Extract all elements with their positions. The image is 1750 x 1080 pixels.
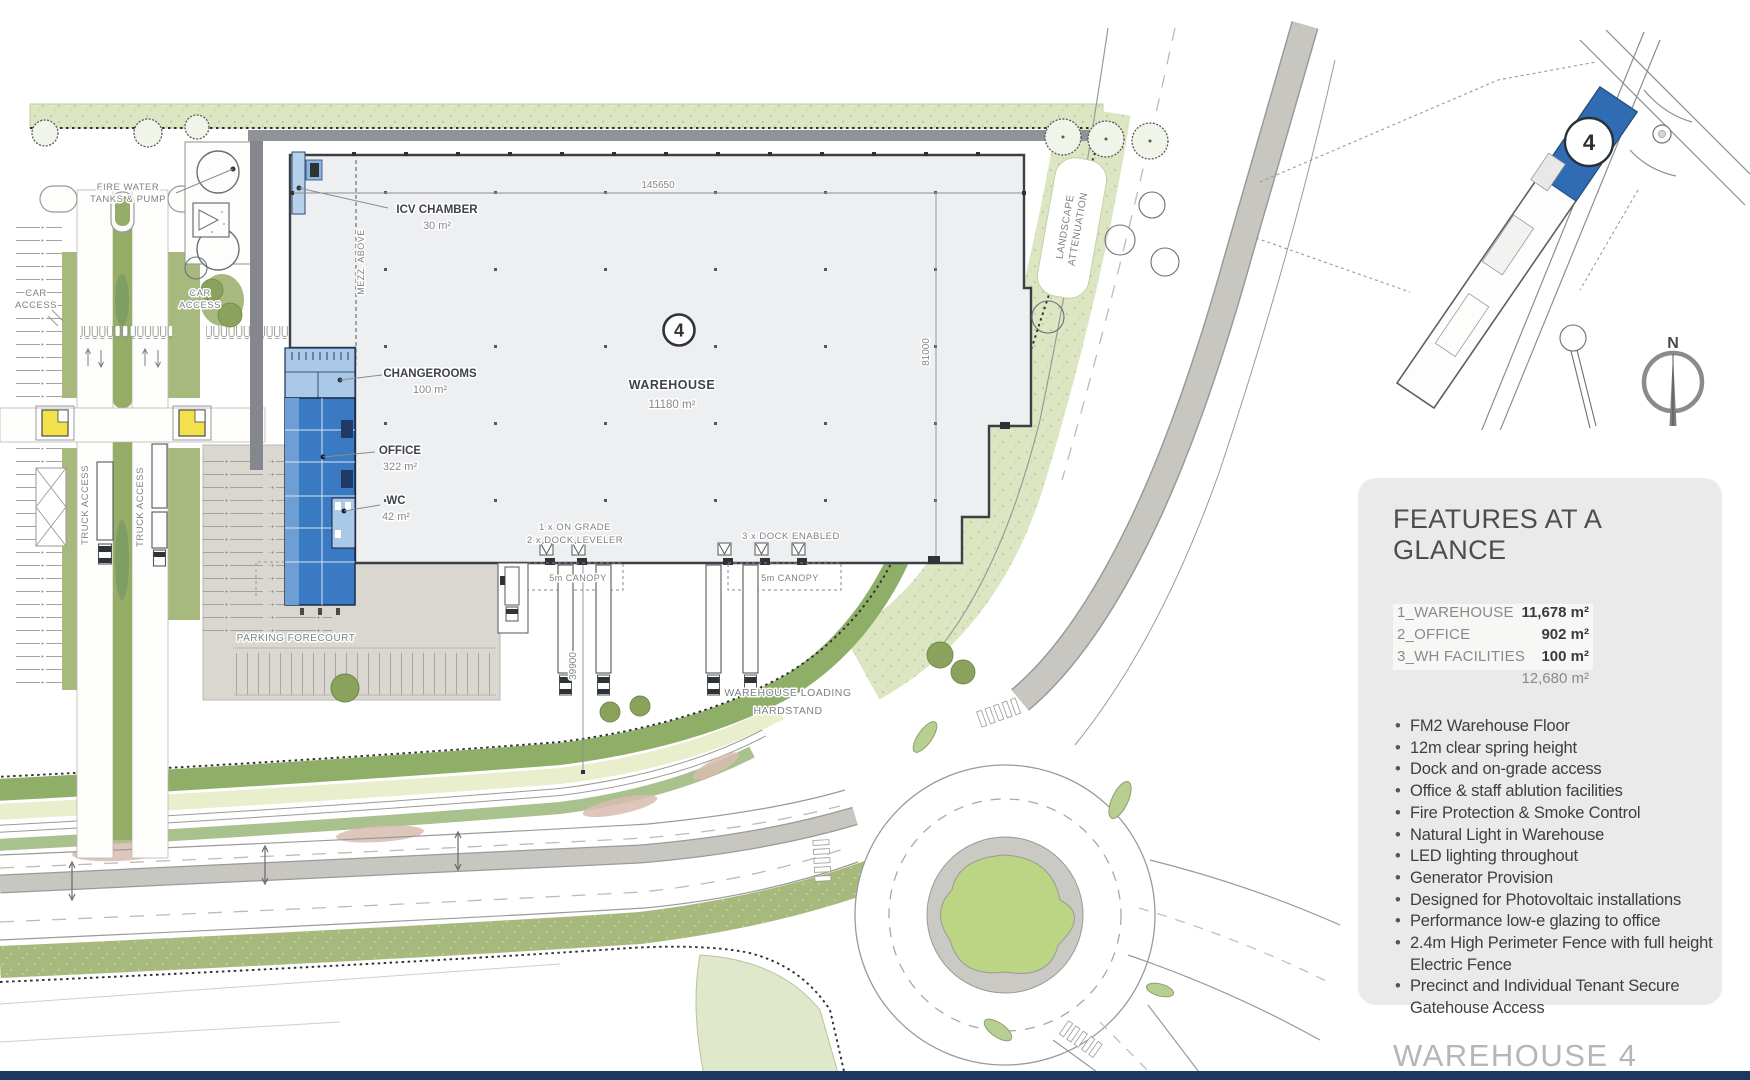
area-row-value: 100 m² bbox=[1541, 648, 1589, 665]
water-tank bbox=[197, 151, 239, 193]
area-schedule: 1_WAREHOUSE 11,678 m² 2_OFFICE 902 m² 3_… bbox=[1393, 604, 1593, 692]
features-panel: FEATURES AT A GLANCE 1_WAREHOUSE 11,678 … bbox=[1358, 478, 1722, 1005]
icv-chamber-label: ICV CHAMBER bbox=[396, 204, 478, 216]
feature-item: Natural Light in Warehouse bbox=[1393, 825, 1723, 847]
locator-culdesac bbox=[1560, 325, 1596, 428]
car-access-label: ACCESS bbox=[15, 300, 57, 311]
on-grade-bay bbox=[498, 563, 528, 633]
changerooms-label: CHANGEROOMS bbox=[383, 368, 477, 380]
compass-rose: N bbox=[1644, 335, 1702, 426]
canopy-label: 5m CANOPY bbox=[549, 573, 607, 583]
feature-item: 12m clear spring height bbox=[1393, 738, 1723, 760]
office-area: 322 m² bbox=[383, 461, 418, 473]
parking-forecourt-label: PARKING FORECOURT bbox=[237, 633, 356, 644]
boundary-wall bbox=[250, 132, 263, 470]
canopy-label: 5m CANOPY bbox=[761, 573, 819, 583]
area-total-value: 12,680 m² bbox=[1521, 670, 1589, 687]
car-access-label: ACCESS bbox=[179, 300, 221, 311]
roundabout bbox=[813, 698, 1340, 1080]
feature-item: Generator Provision bbox=[1393, 868, 1723, 890]
docks-left-label: 1 x ON GRADE bbox=[539, 522, 611, 533]
warehouse-area: 11180 m² bbox=[649, 399, 696, 411]
changerooms-area: 100 m² bbox=[413, 384, 448, 396]
feature-item: Dock and on-grade access bbox=[1393, 759, 1723, 781]
feature-item: 2.4m High Perimeter Fence with full heig… bbox=[1393, 933, 1723, 976]
feature-item: FM2 Warehouse Floor bbox=[1393, 716, 1723, 738]
page-title: WAREHOUSE 4 bbox=[1393, 1038, 1637, 1074]
dim-hardstand: 39900 bbox=[568, 652, 579, 680]
feature-item: Office & staff ablution facilities bbox=[1393, 781, 1723, 803]
truck-access-label: TRUCK ACCESS bbox=[135, 467, 146, 547]
brochure-page: 4 LANDSCAPE ATTENUATION FIRE WATER TANKS bbox=[0, 0, 1750, 1080]
feature-item: LED lighting throughout bbox=[1393, 846, 1723, 868]
gatehouse bbox=[173, 406, 211, 440]
mezz-above-label: MEZZ. ABOVE bbox=[356, 229, 366, 295]
fire-water-label: FIRE WATER bbox=[97, 182, 160, 193]
dim-top: 145650 bbox=[641, 180, 675, 191]
area-row-label: 3_WH FACILITIES bbox=[1397, 648, 1525, 665]
docks-left-label: 2 x DOCK LEVELER bbox=[527, 535, 623, 546]
wc-area: 42 m² bbox=[382, 511, 410, 523]
icv-chamber-area: 30 m² bbox=[423, 220, 451, 232]
car-access-label: CAR bbox=[189, 288, 211, 299]
area-row-label: 1_WAREHOUSE bbox=[1397, 604, 1514, 621]
truck bbox=[152, 444, 167, 566]
loading-hardstand-label: HARDSTAND bbox=[753, 705, 822, 717]
feature-item: Fire Protection & Smoke Control bbox=[1393, 803, 1723, 825]
locator-map: 4 N bbox=[1240, 30, 1750, 430]
fire-water-label: TANKS & PUMP bbox=[90, 194, 166, 205]
car-access-label: CAR bbox=[25, 288, 47, 299]
feature-item: Precinct and Individual Tenant Secure Ga… bbox=[1393, 976, 1723, 1019]
gatehouse bbox=[36, 406, 74, 440]
site-plan: 4 LANDSCAPE ATTENUATION FIRE WATER TANKS bbox=[0, 0, 1340, 1080]
office-label: OFFICE bbox=[379, 445, 421, 457]
footer-accent-bar bbox=[0, 1071, 1750, 1080]
area-total-row: 12,680 m² bbox=[1393, 670, 1593, 692]
area-row: 3_WH FACILITIES 100 m² bbox=[1393, 648, 1593, 670]
area-row: 2_OFFICE 902 m² bbox=[1393, 626, 1593, 648]
wc-label: WC bbox=[386, 495, 405, 507]
area-row: 1_WAREHOUSE 11,678 m² bbox=[1393, 604, 1593, 626]
no-parking-hatch bbox=[36, 468, 66, 546]
area-row-label: 2_OFFICE bbox=[1397, 626, 1470, 643]
area-row-value: 11,678 m² bbox=[1521, 604, 1589, 621]
locator-badge-number: 4 bbox=[1583, 130, 1596, 155]
truck-access-label: TRUCK ACCESS bbox=[80, 465, 91, 545]
loading-hardstand-label: WAREHOUSE LOADING bbox=[724, 687, 851, 699]
features-title: FEATURES AT A GLANCE bbox=[1393, 504, 1722, 566]
building-badge-number: 4 bbox=[674, 321, 684, 341]
area-row-value: 902 m² bbox=[1541, 626, 1589, 643]
warehouse-label: WAREHOUSE bbox=[629, 378, 715, 392]
dim-right: 81000 bbox=[921, 338, 932, 366]
truck bbox=[97, 462, 113, 564]
compass-north-label: N bbox=[1667, 335, 1679, 352]
docks-right-label: 3 x DOCK ENABLED bbox=[742, 531, 840, 542]
building-badge: 4 bbox=[664, 315, 695, 346]
locator-badge: 4 bbox=[1565, 118, 1613, 166]
feature-item: Performance low-e glazing to office bbox=[1393, 911, 1723, 933]
feature-item: Designed for Photovoltaic installations bbox=[1393, 890, 1723, 912]
features-list: FM2 Warehouse Floor 12m clear spring hei… bbox=[1393, 716, 1723, 1020]
